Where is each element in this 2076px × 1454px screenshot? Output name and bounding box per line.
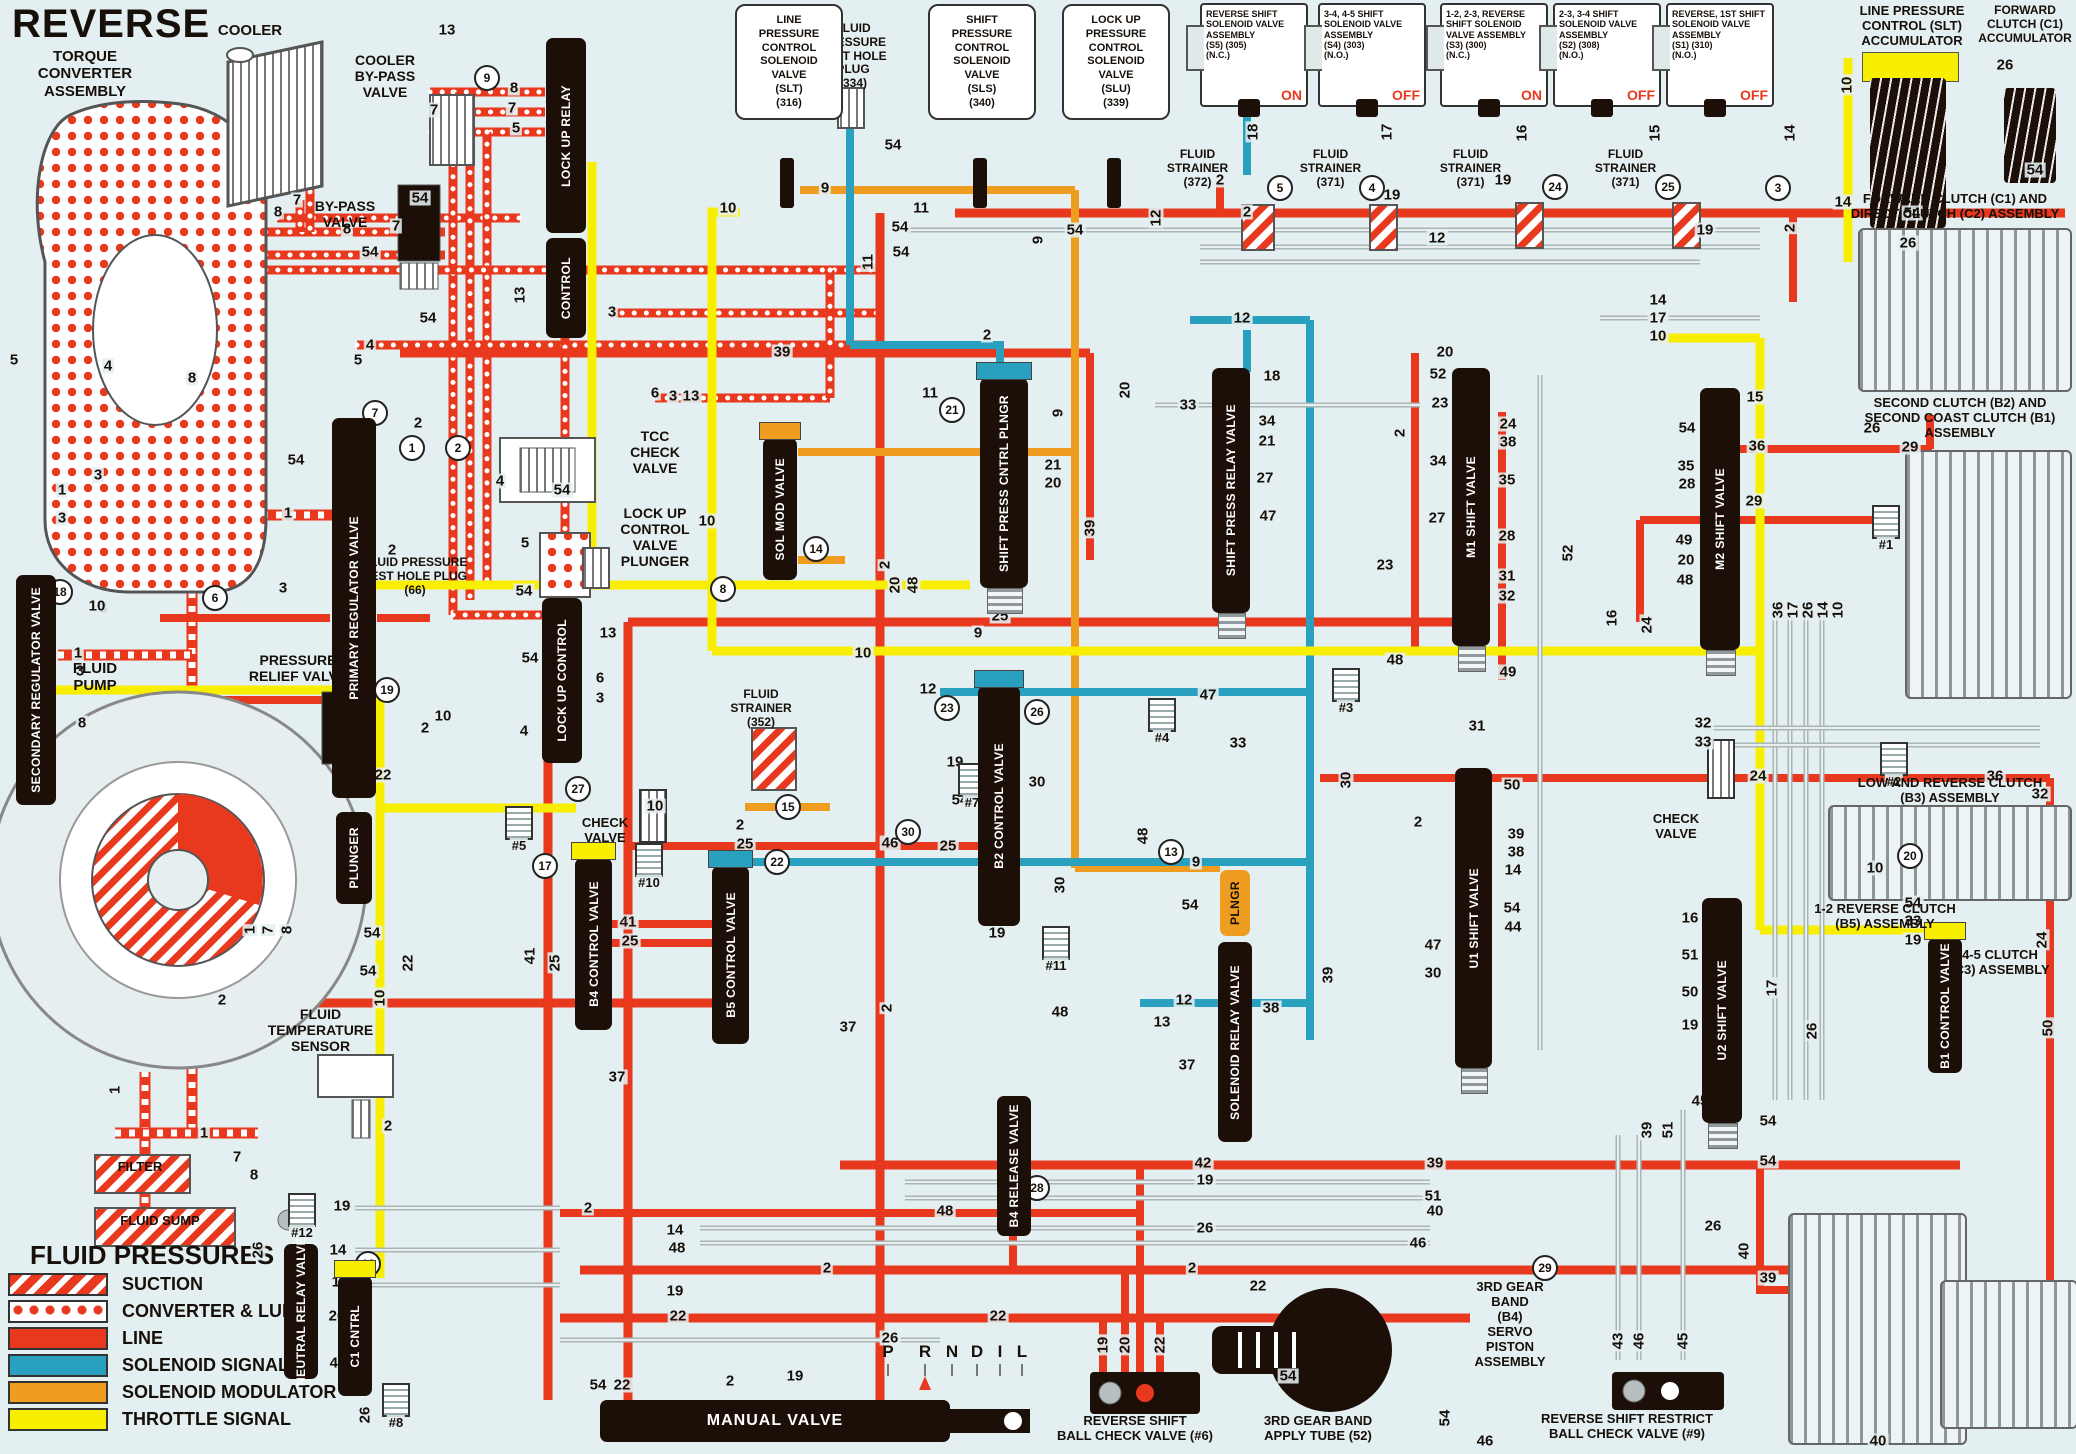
- pipe-number: 35: [1676, 459, 1697, 474]
- pipe-number: 10: [433, 709, 454, 724]
- pipe-number: 18: [1246, 122, 1261, 143]
- pipe-number: 10: [853, 646, 874, 661]
- lock-up-relay-control-label: CONTROL: [559, 257, 573, 319]
- pipe-number: 7: [506, 101, 518, 116]
- shift-press-relay-valve-spring: [1218, 613, 1247, 639]
- ball-check-label: #3: [1337, 700, 1355, 715]
- reverse-shift-ball-check-label: REVERSE SHIFT BALL CHECK VALVE (#6): [1020, 1414, 1250, 1444]
- pipe-number: 8: [186, 371, 198, 386]
- pipe-number: 54: [286, 453, 307, 468]
- torque-converter-assembly-label: TORQUE CONVERTER ASSEMBLY: [10, 48, 160, 100]
- pipe-number: 2: [821, 1261, 833, 1276]
- pipe-number: 47: [1423, 938, 1444, 953]
- pipe-number: 32: [1497, 589, 1518, 604]
- ball-check-valve: #10: [635, 843, 663, 877]
- pipe-number: 39: [1506, 827, 1527, 842]
- c1-c2-assembly-graphic: [1858, 228, 2072, 392]
- pipe-number: 50: [1680, 985, 1701, 1000]
- pipe-number: 48: [667, 1241, 688, 1256]
- b2-control-valve-cap: [974, 670, 1024, 688]
- pipe-number: 14: [1816, 600, 1831, 621]
- solenoid-relay-plngr-label: PLNGR: [1228, 881, 1242, 925]
- pipe-number: 10: [645, 799, 666, 814]
- pipe-number: 3: [594, 691, 606, 706]
- pipe-number: 15: [1648, 123, 1663, 144]
- pipe-number: 37: [607, 1070, 628, 1085]
- assembly-connector: [1186, 25, 1204, 71]
- pipe-number: 9: [819, 181, 831, 196]
- legend-label: THROTTLE SIGNAL: [122, 1409, 291, 1430]
- pipe-number: 39: [1758, 1271, 1779, 1286]
- pipe-number: 20: [1118, 380, 1133, 401]
- pipe-number: 54: [1065, 223, 1086, 238]
- pipe-number: 17: [1786, 600, 1801, 621]
- legend-label: SOLENOID SIGNAL: [122, 1355, 289, 1376]
- circled-number: 21: [939, 397, 965, 423]
- pipe-number: 2: [880, 1002, 895, 1014]
- pipe-number: 1: [72, 646, 84, 661]
- b2-control-valve: B2 CONTROL VALVE: [978, 686, 1020, 926]
- pipe-number: 15: [1745, 390, 1766, 405]
- shift-press-relay-valve-label: SHIFT PRESS RELAY VALVE: [1224, 404, 1238, 576]
- pipe-number: 14: [1783, 123, 1798, 144]
- gear-selector-letter: L: [1017, 1342, 1027, 1362]
- primary-regulator-valve: PRIMARY REGULATOR VALVE: [332, 418, 376, 798]
- fluid-pump-hub: [148, 850, 208, 910]
- pipe-number: 38: [1506, 845, 1527, 860]
- pipe-number: 48: [1050, 1005, 1071, 1020]
- pipe-number: 54: [552, 483, 573, 498]
- servo-assembly-label: 3RD GEAR BAND (B4) SERVO PISTON ASSEMBLY: [1455, 1280, 1565, 1370]
- pipe-number: 47: [1258, 509, 1279, 524]
- pipe-number: 54: [1278, 1369, 1299, 1384]
- pipe-number: 54: [418, 311, 439, 326]
- legend-swatch-modulator: [8, 1381, 108, 1404]
- pipe-number: 10: [718, 201, 739, 216]
- bypass-valve-label: BY-PASS VALVE: [300, 198, 390, 230]
- gear-selector-letter: D: [971, 1342, 983, 1362]
- bypass-valve-spring: [400, 263, 438, 289]
- lock-up-control: LOCK UP CONTROL: [542, 598, 582, 763]
- ball-check-valve: #8: [382, 1383, 410, 1417]
- assembly-state: OFF: [1627, 87, 1655, 103]
- pipe-number: 51: [1423, 1189, 1444, 1204]
- c3-assembly-graphic: [1940, 1280, 2076, 1429]
- pipe-number: 7: [231, 1150, 243, 1165]
- pipe-number: 36: [1771, 600, 1786, 621]
- pipe-number: 8: [272, 205, 284, 220]
- pressure-relief-valve-label: PRESSURE RELIEF VALVE: [238, 652, 358, 684]
- pipe-number: 51: [1680, 948, 1701, 963]
- pipe-number: 25: [620, 934, 641, 949]
- solenoid-relay-valve: SOLENOID RELAY VALVE: [1218, 942, 1252, 1142]
- pipe-number: 16: [1680, 911, 1701, 926]
- pipe-number: 3: [56, 511, 68, 526]
- assembly-connector: [1304, 25, 1322, 71]
- pipe-number: 6: [649, 386, 661, 401]
- solenoid-control-valve-box: LINE PRESSURE CONTROL SOLENOID VALVE (SL…: [735, 4, 843, 120]
- pipe-number: 47: [1198, 688, 1219, 703]
- pipe-number: 30: [1027, 775, 1048, 790]
- assembly-plug: [1238, 99, 1260, 117]
- pipe-number: 33: [1693, 735, 1714, 750]
- neutral-relay-valve: NEUTRAL RELAY VALVE: [284, 1244, 318, 1379]
- pipe-number: 5: [519, 536, 531, 551]
- legend-swatch-signal: [8, 1354, 108, 1377]
- cooler-cap: [227, 48, 253, 62]
- reverse-shift-ball-check-graphic: [1090, 1372, 1200, 1414]
- fluid-temperature-sensor-graphic: [318, 1055, 393, 1097]
- ball-check-label: #4: [1153, 730, 1171, 745]
- m2-shift-valve-spring: [1706, 650, 1736, 676]
- b4-control-valve-label: B4 CONTROL VALVE: [587, 881, 601, 1007]
- fluid-pump-label: FLUID PUMP: [55, 660, 135, 695]
- ball-check-valve: #1: [1872, 505, 1900, 539]
- legend-item-modulator: SOLENOID MODULATOR: [8, 1379, 338, 1406]
- pipe-number: 48: [1136, 826, 1151, 847]
- pipe-number: 2: [1186, 1261, 1198, 1276]
- b3-assembly-label: LOW AND REVERSE CLUTCH (B3) ASSEMBLY: [1835, 776, 2065, 806]
- legend-swatch-line: [8, 1327, 108, 1350]
- lock-up-relay-control: CONTROL: [546, 238, 586, 338]
- fluid-temperature-sensor-bolt: [352, 1100, 370, 1138]
- b2-b1-assembly-label: SECOND CLUTCH (B2) AND SECOND COAST CLUT…: [1845, 396, 2075, 441]
- gear-selector-letter: P: [882, 1342, 893, 1362]
- pipe-number: 4: [518, 724, 530, 739]
- fluid-strainer-371c-label: FLUID STRAINER (371): [1583, 148, 1668, 189]
- ball-check-label: #1: [1877, 537, 1895, 552]
- b2-control-valve-label: B2 CONTROL VALVE: [992, 743, 1006, 869]
- b4-release-valve-label: B4 RELEASE VALVE: [1007, 1104, 1021, 1227]
- c1-c2-assembly-label: FORWARD CLUTCH (C1) AND DIRECT CLUTCH (C…: [1835, 192, 2075, 222]
- circled-number: 1: [399, 435, 425, 461]
- pipe-number: 54: [588, 1378, 609, 1393]
- pipe-number: 11: [861, 252, 876, 272]
- pipe-number: 24: [1498, 417, 1519, 432]
- assembly-state: OFF: [1392, 87, 1420, 103]
- fluid-strainer-371b-label: FLUID STRAINER (371): [1428, 148, 1513, 189]
- solenoid-control-valve-box: SHIFT PRESSURE CONTROL SOLENOID VALVE (S…: [928, 4, 1036, 120]
- solenoid-control-valve-box: LOCK UP PRESSURE CONTROL SOLENOID VALVE …: [1062, 4, 1170, 120]
- gear-selector-tick: [887, 1364, 889, 1376]
- legend-swatch-converter: [8, 1300, 108, 1323]
- shift-press-cntrl-plngr-spring: [987, 588, 1023, 614]
- pipe-number: 3: [667, 389, 679, 404]
- pipe-number: 9: [1031, 234, 1046, 246]
- pipe-number: 19: [1096, 1335, 1111, 1356]
- pipe-number: 10: [1840, 75, 1855, 96]
- pipe-number: 40: [1737, 1241, 1752, 1262]
- pipe-number: 3: [606, 305, 618, 320]
- pipe-number: 9: [972, 626, 984, 641]
- pipe-number: 10: [1648, 329, 1669, 344]
- circled-number: 13: [1158, 839, 1184, 865]
- circled-number: 27: [565, 776, 591, 802]
- legend-label: LINE: [122, 1328, 163, 1349]
- assembly-plug: [1356, 99, 1378, 117]
- pipe-number: 42: [1193, 1156, 1214, 1171]
- pipe-number: 54: [1758, 1114, 1779, 1129]
- solenoid-box-plunger: [780, 158, 794, 208]
- b5-control-valve-cap: [708, 850, 753, 868]
- c1-cntrl-label: C1 CNTRL: [348, 1305, 362, 1368]
- pipe-number: 35: [1497, 473, 1518, 488]
- pipe-number: 7: [390, 219, 402, 234]
- pipe-number: 54: [1180, 898, 1201, 913]
- b5-control-valve: B5 CONTROL VALVE: [712, 866, 749, 1044]
- circled-number: 22: [764, 849, 790, 875]
- lockup-control-valve-plunger-label: LOCK UP CONTROL VALVE PLUNGER: [600, 505, 710, 569]
- neutral-relay-valve-label: NEUTRAL RELAY VALVE: [294, 1237, 308, 1386]
- pipe-number: 26: [1801, 600, 1816, 621]
- circled-number: 2: [445, 435, 471, 461]
- circled-number: 24: [1542, 174, 1568, 200]
- ball-check-label: #8: [387, 1415, 405, 1430]
- assembly-name: REVERSE SHIFT SOLENOID VALVE ASSEMBLY: [1206, 9, 1302, 40]
- b2-b1-assembly-graphic: [1905, 450, 2072, 699]
- pipe-number: 3: [92, 468, 104, 483]
- pipe-number: 54: [1758, 1154, 1779, 1169]
- pipe-number: 52: [1561, 543, 1576, 564]
- b4-control-valve: B4 CONTROL VALVE: [575, 858, 612, 1030]
- pipe-number: 2: [419, 721, 431, 736]
- solenoid-valve-assembly: 1-2, 2-3, REVERSE SHIFT SOLENOID VALVE A…: [1440, 3, 1548, 107]
- pipe-number: 11: [911, 201, 931, 216]
- circled-number: 6: [202, 585, 228, 611]
- pipe-number: 13: [681, 389, 702, 404]
- pipe-number: 7: [428, 103, 440, 118]
- assembly-mode: (N.O.): [1324, 50, 1420, 60]
- pipe-number: 46: [1408, 1236, 1429, 1251]
- pipe-number: 36: [1747, 439, 1768, 454]
- circled-number: 8: [710, 576, 736, 602]
- torque-converter-hub: [93, 235, 217, 425]
- ball-check-valve: #11: [1042, 926, 1070, 960]
- fluid-strainer-371a-label: FLUID STRAINER (371): [1288, 148, 1373, 189]
- manual-valve-label: MANUAL VALVE: [707, 1412, 843, 1430]
- pipe-number: 38: [1261, 1001, 1282, 1016]
- pipe-number: 17: [1380, 122, 1395, 143]
- pipe-number: 19: [987, 926, 1008, 941]
- assembly-connector: [1652, 25, 1670, 71]
- b5-control-valve-label: B5 CONTROL VALVE: [724, 892, 738, 1018]
- c1-cntrl-cap: [334, 1260, 376, 1278]
- pipe-number: 54: [1502, 901, 1523, 916]
- ball-check-valve: #2: [1880, 742, 1908, 776]
- legend-label: CONVERTER & LUBE: [122, 1301, 307, 1322]
- assembly-name: 2-3, 3-4 SHIFT SOLENOID VALVE ASSEMBLY: [1559, 9, 1655, 40]
- pipe-number: 4: [364, 338, 376, 353]
- pipe-number: 26: [1995, 58, 2016, 73]
- pipe-number: 30: [1053, 875, 1068, 896]
- pipe-number: 38: [1498, 435, 1519, 450]
- u2-shift-valve: U2 SHIFT VALVE: [1702, 898, 1742, 1123]
- check-valve-mid-label: CHECK VALVE: [570, 816, 640, 846]
- pipe-number: 13: [437, 23, 458, 38]
- b4-release-valve: B4 RELEASE VALVE: [997, 1096, 1031, 1236]
- pipe-number: 39: [1321, 965, 1336, 986]
- filter-label: FILTER: [100, 1160, 180, 1175]
- shift-press-cntrl-plngr-cap: [976, 362, 1032, 380]
- fluid-strainer-352-label: FLUID STRAINER (352): [716, 688, 806, 729]
- pipe-number: 48: [1385, 653, 1406, 668]
- pipe-number: 19: [785, 1369, 806, 1384]
- pipe-number: 33: [1178, 398, 1199, 413]
- pipe-number: 29: [1900, 440, 1921, 455]
- cooler-bypass-valve-label: COOLER BY-PASS VALVE: [330, 52, 440, 100]
- solenoid-box-plunger: [1107, 158, 1121, 208]
- solenoid-box-plunger: [973, 158, 987, 208]
- pipe-number: 40: [1868, 1434, 1889, 1449]
- slt-accumulator-label: LINE PRESSURE CONTROL (SLT) ACCUMULATOR: [1843, 4, 1981, 49]
- pipe-number: 22: [401, 953, 416, 974]
- pipe-number: 32: [1693, 716, 1714, 731]
- circled-number: 3: [1765, 175, 1791, 201]
- pipe-number: 26: [1703, 1219, 1724, 1234]
- pipe-number: 28: [1497, 529, 1518, 544]
- secondary-regulator-valve-label: SECONDARY REGULATOR VALVE: [29, 587, 43, 793]
- pipe-number: 54: [1677, 421, 1698, 436]
- ball-check-valve: #12: [288, 1193, 316, 1227]
- pipe-number: 39: [1425, 1156, 1446, 1171]
- solenoid-valve-assembly: REVERSE, 1ST SHIFT SOLENOID VALVE ASSEMB…: [1666, 3, 1774, 107]
- pipe-number: 2: [412, 416, 424, 431]
- pipe-number: 33: [1228, 736, 1249, 751]
- pipe-number: 2: [1412, 815, 1424, 830]
- ball-check-valve: #5: [505, 806, 533, 840]
- pipe-number: 22: [1248, 1279, 1269, 1294]
- pipe-number: 2: [981, 328, 993, 343]
- circled-number: 17: [532, 853, 558, 879]
- pipe-number: 20: [1043, 476, 1064, 491]
- test-plug-66-label: FLUID PRESSURE TEST HOLE PLUG (66): [340, 556, 490, 597]
- c1-accumulator-label: FORWARD CLUTCH (C1) ACCUMULATOR: [1975, 4, 2075, 45]
- pipe-number: 2: [382, 1119, 394, 1134]
- b5-assembly-label: 1-2 REVERSE CLUTCH (B5) ASSEMBLY: [1790, 902, 1980, 932]
- circled-number: 29: [1532, 1255, 1558, 1281]
- gear-selector-tick: [1021, 1364, 1023, 1376]
- assembly-code: (S1) (310): [1672, 40, 1768, 50]
- gear-selector-tick: [924, 1364, 926, 1376]
- lock-up-relay-label: LOCK UP RELAY: [559, 85, 573, 187]
- pipe-number: 12: [1149, 208, 1164, 229]
- strainer-371b-graphic: [1516, 203, 1543, 248]
- u1-shift-valve-label: U1 SHIFT VALVE: [1467, 868, 1481, 969]
- pipe-number: 21: [1257, 434, 1278, 449]
- pipe-number: 14: [665, 1223, 686, 1238]
- legend-swatch-suction: [8, 1273, 108, 1296]
- hydraulic-circuit-diagram: REVERSE FLUID PRESSURES SUCTIONCONVERTER…: [0, 0, 2076, 1454]
- pipe-number: 40: [1425, 1204, 1446, 1219]
- assembly-name: 3-4, 4-5 SHIFT SOLENOID VALVE ASSEMBLY: [1324, 9, 1420, 40]
- solenoid-valve-assembly: 2-3, 3-4 SHIFT SOLENOID VALVE ASSEMBLY(S…: [1553, 3, 1661, 107]
- cooler-label: COOLER: [200, 22, 300, 39]
- pipe-number: 2: [1393, 427, 1408, 439]
- sol-mod-valve: SOL MOD VALVE: [763, 438, 797, 580]
- pipe-number: 20: [1676, 553, 1697, 568]
- pipe-number: 8: [76, 716, 88, 731]
- solenoid-relay-plngr: PLNGR: [1220, 870, 1250, 936]
- pipe-number: 12: [1427, 231, 1448, 246]
- assembly-state: OFF: [1740, 87, 1768, 103]
- pipe-number: 26: [1898, 236, 1919, 251]
- gear-selector-tick: [976, 1364, 978, 1376]
- u1-shift-valve: U1 SHIFT VALVE: [1455, 768, 1492, 1068]
- pipe-number: 22: [988, 1309, 1009, 1324]
- pipe-number: 10: [87, 599, 108, 614]
- sol-mod-valve-label: SOL MOD VALVE: [773, 458, 787, 561]
- circled-number: 9: [474, 65, 500, 91]
- pipe-number: 49: [1498, 665, 1519, 680]
- circled-number: 30: [895, 819, 921, 845]
- primary-regulator-plunger: PLUNGER: [336, 812, 372, 904]
- pipe-number: 39: [1640, 1120, 1655, 1141]
- pipe-number: 46: [1475, 1434, 1496, 1449]
- pipe-number: 37: [838, 1020, 859, 1035]
- circled-number: 26: [1024, 699, 1050, 725]
- circled-number: 14: [803, 536, 829, 562]
- check-valve-right-label: CHECK VALVE: [1636, 812, 1716, 842]
- pipe-number: 54: [358, 964, 379, 979]
- pipe-number: 27: [1255, 471, 1276, 486]
- manual-valve: MANUAL VALVE: [600, 1400, 950, 1442]
- tcc-check-valve-label: TCC CHECK VALVE: [615, 428, 695, 476]
- primary-regulator-plunger-label: PLUNGER: [347, 827, 361, 888]
- pipe-number: 30: [1339, 770, 1354, 791]
- pipe-number: 54: [410, 191, 431, 206]
- m1-shift-valve-spring: [1458, 646, 1487, 672]
- pipe-number: 54: [362, 926, 383, 941]
- pipe-number: 23: [1375, 558, 1396, 573]
- pipe-number: 54: [514, 584, 535, 599]
- pipe-number: 1: [198, 1126, 210, 1141]
- band-apply-tube-label: 3RD GEAR BAND APPLY TUBE (52): [1238, 1414, 1398, 1444]
- strainer-371a-graphic: [1370, 205, 1397, 250]
- pipe-number: 5: [510, 121, 522, 136]
- pipe-number: 22: [668, 1309, 689, 1324]
- reverse-shift-restrict-label: REVERSE SHIFT RESTRICT BALL CHECK VALVE …: [1512, 1412, 1742, 1442]
- lock-up-relay: LOCK UP RELAY: [546, 38, 586, 233]
- pipe-number: 1: [243, 924, 258, 936]
- pipe-number: 54: [890, 220, 911, 235]
- legend-swatch-throttle: [8, 1408, 108, 1431]
- pipe-number: 16: [1515, 123, 1530, 144]
- pipe-number: 50: [2041, 1018, 2056, 1039]
- assembly-plug: [1704, 99, 1726, 117]
- pipe-number: 8: [508, 81, 520, 96]
- circled-number: 23: [934, 695, 960, 721]
- m1-shift-valve-label: M1 SHIFT VALVE: [1464, 456, 1478, 558]
- legend-item-throttle: THROTTLE SIGNAL: [8, 1406, 338, 1433]
- cooler-graphic: [228, 42, 322, 206]
- pipe-number: 34: [1257, 414, 1278, 429]
- pipe-number: 1: [108, 1084, 123, 1096]
- pipe-number: 13: [513, 285, 528, 306]
- pipe-number: 2: [724, 1374, 736, 1389]
- pipe-number: 2: [582, 1201, 594, 1216]
- pipe-number: 18: [1262, 369, 1283, 384]
- pipe-number: 39: [772, 345, 793, 360]
- m2-shift-valve: M2 SHIFT VALVE: [1700, 388, 1740, 650]
- gear-selector-tick: [999, 1364, 1001, 1376]
- servo-piston-graphic: [1212, 1288, 1392, 1412]
- pipe-number: 43: [1611, 1331, 1626, 1352]
- pipe-number: 54: [360, 245, 381, 260]
- pipe-number: 8: [248, 1168, 260, 1183]
- pipe-number: 31: [1497, 569, 1518, 584]
- reverse-shift-restrict-ball-check-graphic: [1612, 1372, 1724, 1410]
- pipe-number: 19: [1195, 1173, 1216, 1188]
